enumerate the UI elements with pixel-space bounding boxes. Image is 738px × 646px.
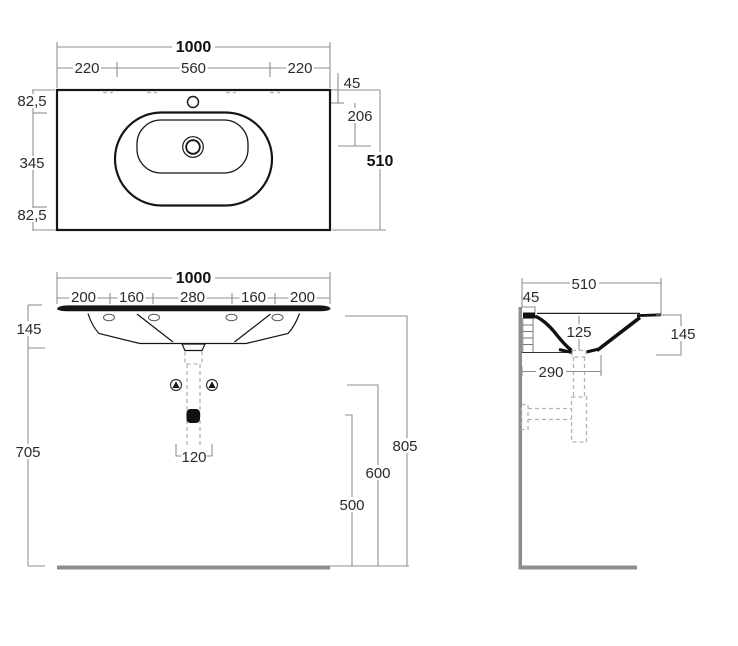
side-bowl-depth-label: 125 [566,324,591,341]
front-rim-slab [57,305,331,311]
plan-left-span-label: 220 [74,60,99,77]
side-wall-offset-label: 45 [523,289,540,306]
front-drain-pipe-hidden [185,352,202,447]
front-basin-height-label: 145 [16,321,41,338]
front-span-3-label: 280 [180,289,205,306]
front-span-1-label: 200 [71,289,96,306]
plan-drain-offset-label: 206 [347,108,372,125]
plan-basin-outline [57,90,330,230]
plan-view: 1000 220 560 220 45 206 510 82,5 345 82,… [15,39,397,230]
front-floor-clearance-label: 705 [15,444,40,461]
plan-right-span-label: 220 [287,60,312,77]
front-trap-height-label: 500 [339,497,364,514]
side-fixing-block [523,313,535,319]
front-total-width-label: 1000 [176,270,212,287]
plan-tap-hole [188,97,199,108]
plan-edge-offset-top-label: 82,5 [17,93,46,110]
plan-center-span-label: 560 [181,60,206,77]
front-fixing-bolts [171,380,218,391]
drawing-canvas: 1000 220 560 220 45 206 510 82,5 345 82,… [0,0,738,646]
front-span-2-label: 160 [119,289,144,306]
plan-tap-offset-label: 45 [344,75,361,92]
side-total-depth-label: 510 [571,276,596,293]
front-fixing-holes [104,314,284,320]
front-rim-height-label: 805 [392,438,417,455]
front-underside-outline [88,314,300,344]
front-span-4-label: 160 [241,289,266,306]
side-fixing-bracket [523,319,533,353]
front-view: 1000 200 160 280 160 200 145 705 120 500… [14,270,420,568]
washbasin-technical-drawing: 1000 220 560 220 45 206 510 82,5 345 82,… [0,0,738,646]
front-drain-stub [182,344,205,351]
side-view: 510 45 125 290 145 [519,276,698,570]
front-span-5-label: 200 [290,289,315,306]
plan-total-width-label: 1000 [176,39,212,56]
front-drain-spacing-label: 120 [181,449,206,466]
plan-total-depth-label: 510 [367,153,394,170]
plan-labels: 1000 220 560 220 45 206 510 82,5 345 82,… [15,39,397,224]
front-mid-height-label: 600 [365,465,390,482]
side-trap-distance-label: 290 [538,364,563,381]
plan-edge-offset-bottom-label: 82,5 [17,207,46,224]
side-labels: 510 45 125 290 145 [523,276,698,381]
plan-bowl-inner [137,120,248,173]
front-waste-plug [187,409,201,423]
side-basin-height-label: 145 [670,326,695,343]
plan-drain-inner [186,140,200,154]
plan-side-span-label: 345 [19,155,44,172]
